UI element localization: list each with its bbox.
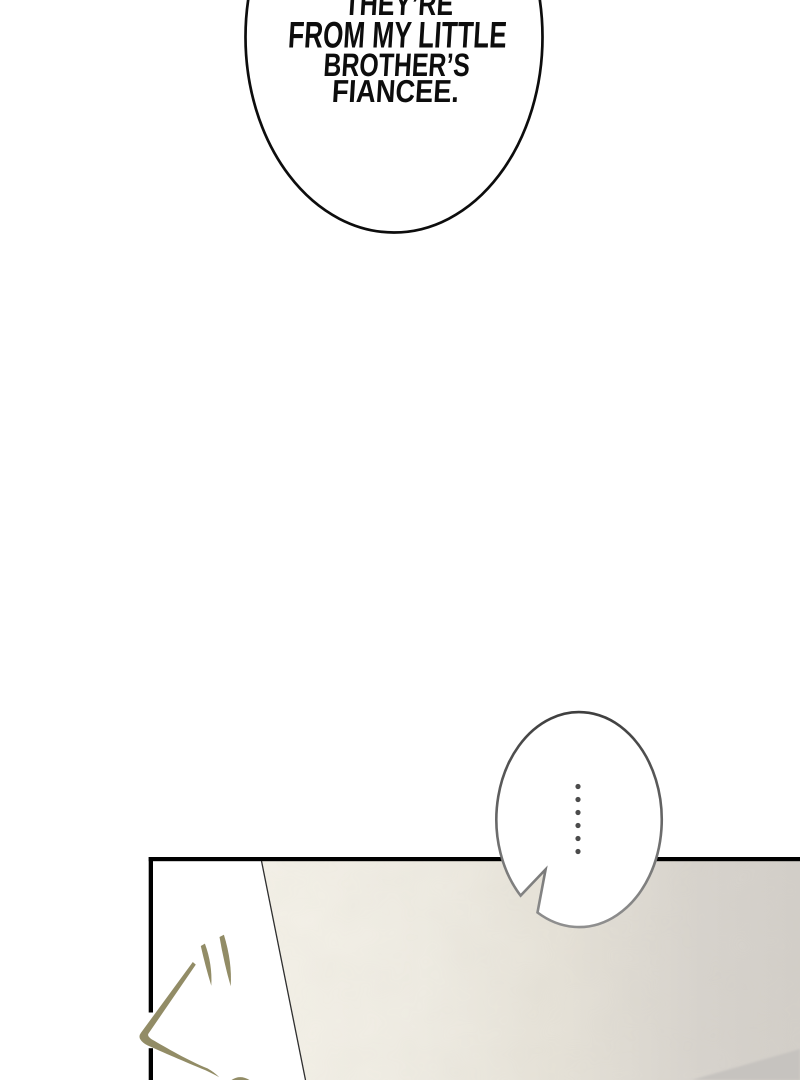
svg-text:FIANCEE.: FIANCEE. (331, 73, 460, 109)
